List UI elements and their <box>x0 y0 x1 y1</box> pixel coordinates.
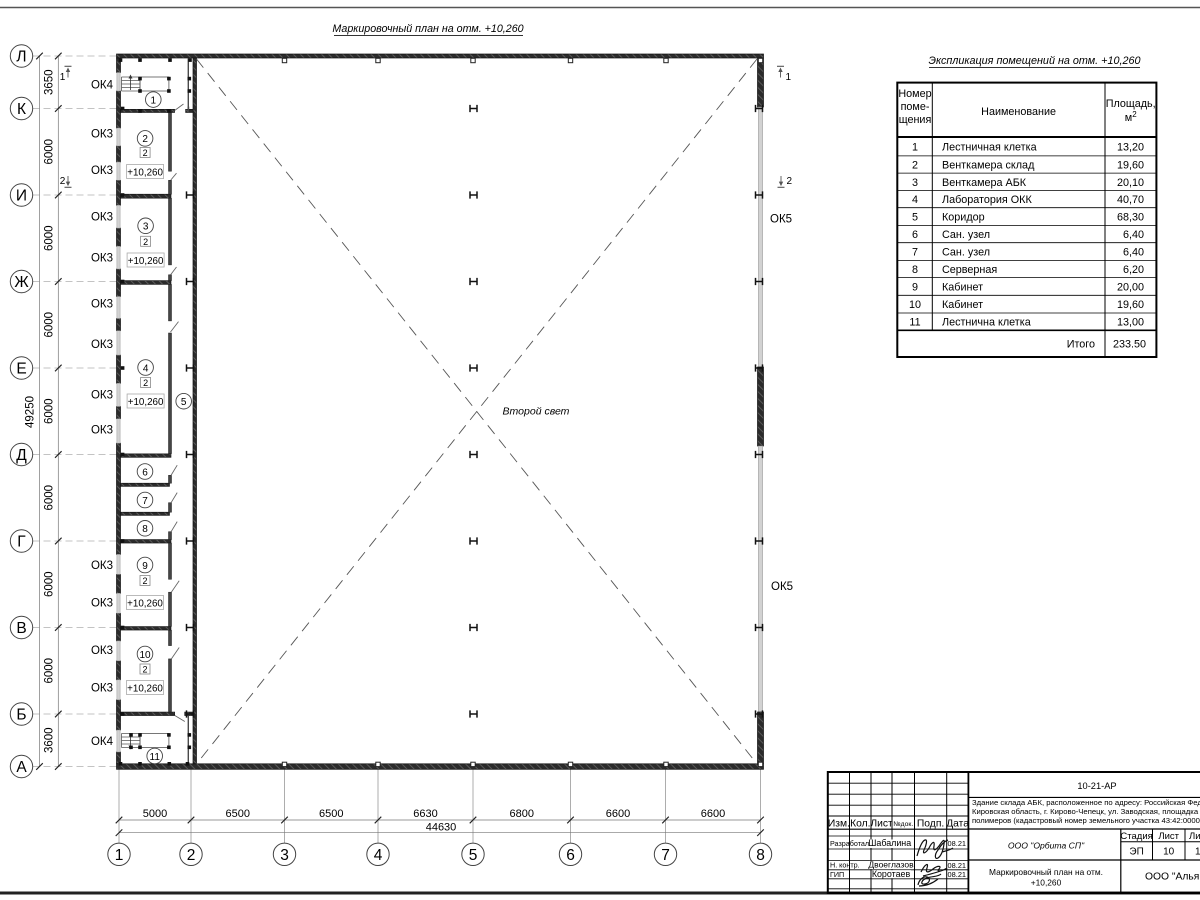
svg-text:Площадь,: Площадь, <box>1106 98 1156 110</box>
svg-text:Второй свет: Второй свет <box>503 406 570 418</box>
svg-text:ОК3: ОК3 <box>91 339 113 351</box>
svg-text:49250: 49250 <box>25 396 37 428</box>
svg-text:ГИП: ГИП <box>830 870 844 879</box>
svg-text:2: 2 <box>60 176 66 187</box>
svg-text:ОК3: ОК3 <box>91 645 113 657</box>
svg-text:ОК5: ОК5 <box>770 214 792 226</box>
svg-text:Номер: Номер <box>898 88 931 100</box>
svg-text:3600: 3600 <box>44 727 56 753</box>
svg-text:6600: 6600 <box>606 808 630 820</box>
svg-text:2: 2 <box>143 378 148 388</box>
svg-text:Шабалина: Шабалина <box>868 838 911 848</box>
svg-text:Е: Е <box>16 361 26 378</box>
svg-text:6800: 6800 <box>510 808 534 820</box>
svg-text:Стадия: Стадия <box>1120 831 1152 842</box>
svg-text:+10,260: +10,260 <box>127 598 163 609</box>
svg-text:3650: 3650 <box>44 69 56 95</box>
svg-text:Наименование: Наименование <box>981 106 1056 118</box>
svg-text:Кол.: Кол. <box>850 818 870 829</box>
svg-text:+10,260: +10,260 <box>128 256 164 267</box>
svg-text:2: 2 <box>787 176 793 187</box>
svg-text:6: 6 <box>912 229 918 241</box>
svg-text:Лист: Лист <box>1158 831 1179 842</box>
svg-text:6,40: 6,40 <box>1123 247 1144 259</box>
svg-text:08.21: 08.21 <box>948 870 967 879</box>
svg-text:ОК3: ОК3 <box>91 252 113 264</box>
svg-text:7: 7 <box>661 847 670 864</box>
svg-text:44630: 44630 <box>426 822 457 834</box>
svg-text:19,60: 19,60 <box>1117 160 1144 172</box>
svg-text:2: 2 <box>142 134 148 145</box>
svg-text:Лестнична клетка: Лестнична клетка <box>942 317 1031 329</box>
svg-text:1: 1 <box>912 142 918 154</box>
svg-text:ОК3: ОК3 <box>91 683 113 695</box>
svg-text:Венткамера АБК: Венткамера АБК <box>942 177 1027 189</box>
svg-text:Н. контр.: Н. контр. <box>830 861 860 870</box>
svg-text:2: 2 <box>187 847 196 864</box>
svg-text:ООО "Орбита СП": ООО "Орбита СП" <box>1008 841 1085 851</box>
svg-text:5: 5 <box>912 212 918 224</box>
svg-text:Маркировочный план на отм.: Маркировочный план на отм. <box>989 867 1103 877</box>
svg-text:Д: Д <box>16 447 27 464</box>
svg-text:Ж: Ж <box>14 274 29 291</box>
svg-text:6,40: 6,40 <box>1123 229 1144 241</box>
svg-text:19,60: 19,60 <box>1117 299 1144 311</box>
svg-text:4: 4 <box>143 363 149 374</box>
svg-text:8: 8 <box>756 847 765 864</box>
svg-text:6,20: 6,20 <box>1123 264 1144 276</box>
svg-text:ОК4: ОК4 <box>91 80 114 92</box>
svg-text:9: 9 <box>912 282 918 294</box>
svg-text:08.21: 08.21 <box>948 861 967 870</box>
svg-text:6: 6 <box>142 467 148 478</box>
svg-text:Подп.: Подп. <box>917 818 944 829</box>
svg-text:поме-: поме- <box>901 101 930 113</box>
svg-text:+10,260: +10,260 <box>127 167 163 178</box>
svg-text:Сан. узел: Сан. узел <box>942 247 990 259</box>
svg-text:Серверная: Серверная <box>942 264 997 276</box>
svg-text:Кировская область, г. Кирово-Ч: Кировская область, г. Кирово-Чепецк, ул.… <box>972 807 1200 816</box>
svg-text:7: 7 <box>142 496 148 507</box>
svg-text:6000: 6000 <box>44 139 56 165</box>
svg-text:6500: 6500 <box>226 808 250 820</box>
svg-text:Экспликация помещений на отм.: Экспликация помещений на отм. +10,260 <box>929 55 1141 67</box>
svg-text:6000: 6000 <box>44 225 56 251</box>
svg-text:10: 10 <box>1163 847 1175 858</box>
svg-text:13,00: 13,00 <box>1117 317 1144 329</box>
svg-text:9: 9 <box>142 561 148 572</box>
svg-text:Лаборатория ОКК: Лаборатория ОКК <box>942 194 1032 206</box>
svg-text:Лис: Лис <box>1189 831 1200 842</box>
svg-text:5: 5 <box>469 847 478 864</box>
svg-text:К: К <box>17 101 26 118</box>
svg-text:6000: 6000 <box>44 398 56 424</box>
svg-text:Здание склада АБК, расположенн: Здание склада АБК, расположенное по адре… <box>972 798 1200 807</box>
svg-text:Маркировочный план на отм. +10: Маркировочный план на отм. +10,260 <box>332 23 523 35</box>
svg-text:20,10: 20,10 <box>1117 177 1144 189</box>
svg-text:6000: 6000 <box>44 658 56 684</box>
svg-text:В: В <box>16 620 26 637</box>
svg-text:7: 7 <box>912 247 918 259</box>
svg-text:6000: 6000 <box>44 485 56 511</box>
svg-text:3: 3 <box>912 177 918 189</box>
svg-text:Итого: Итого <box>1067 339 1095 351</box>
svg-text:2: 2 <box>912 160 918 172</box>
svg-text:8: 8 <box>142 524 148 535</box>
svg-text:А: А <box>16 759 27 776</box>
svg-text:6000: 6000 <box>44 312 56 338</box>
svg-text:ОК3: ОК3 <box>91 560 113 572</box>
svg-text:+10,260: +10,260 <box>128 397 164 408</box>
svg-text:ОК5: ОК5 <box>771 581 793 593</box>
svg-text:щения: щения <box>899 114 932 126</box>
svg-text:40,70: 40,70 <box>1117 194 1144 206</box>
svg-text:2: 2 <box>142 665 147 675</box>
svg-text:1: 1 <box>786 72 792 83</box>
svg-text:2: 2 <box>143 237 148 247</box>
svg-text:10-21-АР: 10-21-АР <box>1077 781 1116 791</box>
svg-text:Разработал: Разработал <box>830 839 869 848</box>
svg-text:1: 1 <box>60 72 66 83</box>
svg-text:13,20: 13,20 <box>1117 142 1144 154</box>
svg-text:08.21: 08.21 <box>948 839 967 848</box>
svg-text:1: 1 <box>115 847 124 864</box>
svg-text:233.50: 233.50 <box>1113 339 1146 351</box>
svg-text:ОК3: ОК3 <box>91 390 113 402</box>
svg-text:1: 1 <box>1195 847 1200 858</box>
svg-text:11: 11 <box>909 317 920 329</box>
svg-text:Г: Г <box>17 534 26 551</box>
svg-text:6500: 6500 <box>319 808 343 820</box>
svg-text:2: 2 <box>142 576 147 586</box>
svg-text:полимеров (кадастровый номер з: полимеров (кадастровый номер земельного … <box>972 816 1200 825</box>
svg-text:Лестничная клетка: Лестничная клетка <box>942 142 1037 154</box>
svg-text:Л: Л <box>16 49 26 66</box>
svg-text:ОК3: ОК3 <box>91 212 113 224</box>
svg-text:ОК3: ОК3 <box>91 598 113 610</box>
svg-text:10: 10 <box>139 650 151 661</box>
svg-text:ОК3: ОК3 <box>91 129 113 141</box>
svg-text:+10,260: +10,260 <box>1031 878 1062 888</box>
svg-text:ОК4: ОК4 <box>91 736 114 748</box>
svg-text:ОК3: ОК3 <box>91 299 113 311</box>
svg-text:Изм.: Изм. <box>828 818 850 829</box>
svg-text:1: 1 <box>151 95 157 106</box>
svg-text:Коридор: Коридор <box>942 212 985 224</box>
svg-text:Лист: Лист <box>870 818 893 829</box>
svg-text:И: И <box>16 188 27 205</box>
svg-text:3: 3 <box>143 222 149 233</box>
svg-text:Сан. узел: Сан. узел <box>942 229 990 241</box>
svg-text:Кабинет: Кабинет <box>942 282 983 294</box>
svg-text:5: 5 <box>181 397 187 408</box>
svg-text:6600: 6600 <box>701 808 725 820</box>
svg-text:+10,260: +10,260 <box>127 683 163 694</box>
svg-text:ООО "Альянс Групп": ООО "Альянс Групп" <box>1145 872 1200 883</box>
svg-text:4: 4 <box>374 847 383 864</box>
svg-text:6630: 6630 <box>413 808 437 820</box>
svg-text:ОК3: ОК3 <box>91 425 113 437</box>
svg-text:ЭП: ЭП <box>1129 847 1143 858</box>
svg-text:Кабинет: Кабинет <box>942 299 983 311</box>
svg-text:Б: Б <box>16 707 26 724</box>
svg-text:5000: 5000 <box>143 808 167 820</box>
svg-text:Дата: Дата <box>946 818 969 829</box>
svg-text:6: 6 <box>566 847 575 864</box>
svg-text:Венткамера склад: Венткамера склад <box>942 160 1035 172</box>
svg-text:68,30: 68,30 <box>1117 212 1144 224</box>
svg-text:3: 3 <box>280 847 289 864</box>
svg-text:№док.: №док. <box>893 821 913 828</box>
svg-text:11: 11 <box>150 752 161 763</box>
svg-text:ОК3: ОК3 <box>91 165 113 177</box>
svg-text:10: 10 <box>909 299 921 311</box>
svg-text:2: 2 <box>143 148 148 158</box>
svg-text:Коротаев: Коротаев <box>872 869 911 879</box>
svg-text:4: 4 <box>912 194 918 206</box>
svg-text:8: 8 <box>912 264 918 276</box>
svg-text:20,00: 20,00 <box>1117 282 1144 294</box>
svg-text:6000: 6000 <box>44 571 56 597</box>
